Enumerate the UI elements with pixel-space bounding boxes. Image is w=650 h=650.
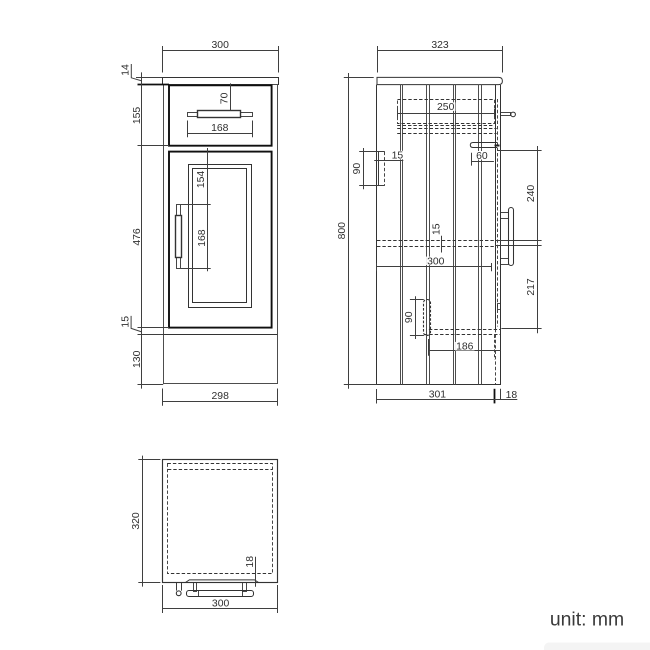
svg-text:217: 217 — [526, 278, 537, 296]
svg-text:300: 300 — [212, 599, 230, 610]
svg-text:70: 70 — [219, 92, 230, 104]
svg-text:18: 18 — [245, 556, 256, 568]
svg-text:168: 168 — [211, 123, 229, 134]
svg-text:15: 15 — [120, 316, 131, 328]
svg-text:14: 14 — [120, 64, 131, 76]
svg-text:800: 800 — [337, 222, 348, 240]
svg-text:130: 130 — [132, 350, 143, 368]
svg-text:320: 320 — [131, 512, 142, 530]
svg-text:15: 15 — [431, 223, 442, 235]
svg-text:unit: mm: unit: mm — [550, 608, 624, 630]
svg-text:250: 250 — [437, 102, 455, 113]
svg-text:186: 186 — [456, 342, 474, 353]
svg-text:301: 301 — [429, 390, 447, 401]
svg-text:476: 476 — [132, 228, 143, 246]
svg-text:154: 154 — [196, 171, 207, 189]
svg-text:60: 60 — [476, 151, 488, 162]
svg-text:300: 300 — [427, 256, 445, 267]
svg-text:300: 300 — [212, 40, 230, 51]
svg-text:90: 90 — [352, 163, 363, 175]
svg-text:323: 323 — [431, 40, 449, 51]
svg-text:15: 15 — [392, 151, 404, 162]
svg-text:298: 298 — [212, 391, 230, 402]
svg-text:90: 90 — [404, 311, 415, 323]
svg-text:240: 240 — [526, 185, 537, 203]
svg-text:18: 18 — [506, 390, 518, 401]
svg-text:168: 168 — [197, 229, 208, 247]
svg-text:155: 155 — [132, 107, 143, 125]
